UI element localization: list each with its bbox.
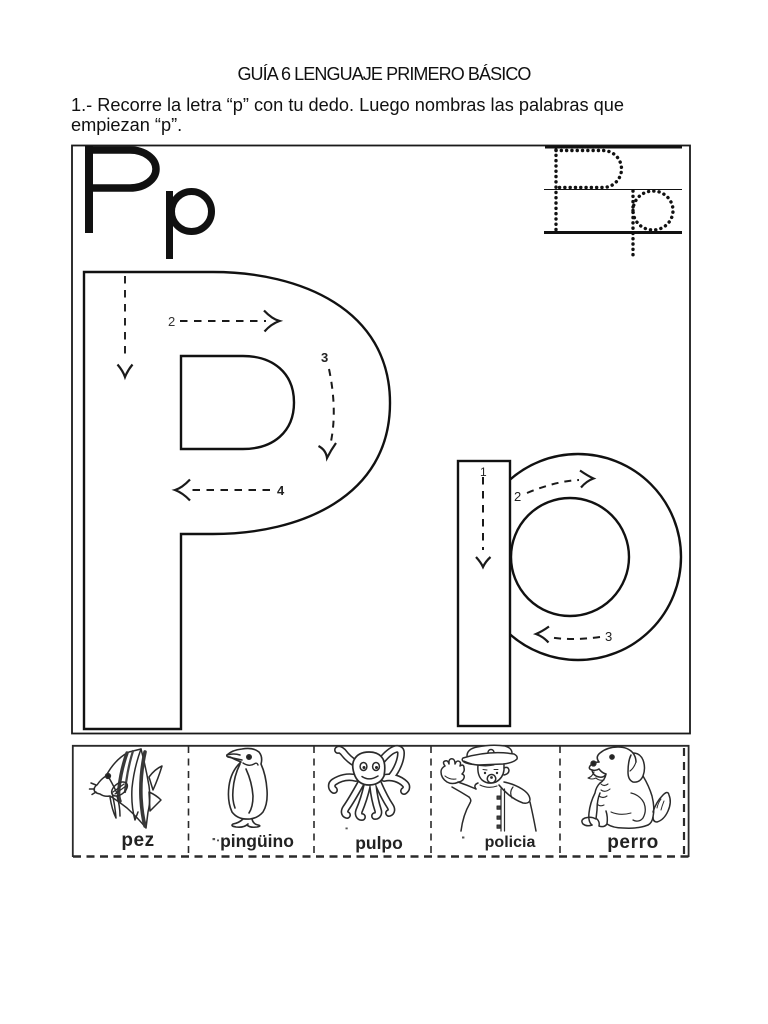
svg-text:3: 3	[605, 629, 612, 644]
svg-text:pingüino: pingüino	[220, 831, 294, 851]
svg-text:2: 2	[514, 489, 521, 504]
svg-text:3: 3	[321, 350, 328, 365]
svg-text:perro: perro	[607, 832, 659, 853]
svg-text:pulpo: pulpo	[355, 833, 403, 853]
svg-text:policia: policia	[485, 834, 536, 851]
svg-text:1: 1	[480, 465, 487, 479]
svg-text:pez: pez	[121, 830, 154, 851]
svg-text:4: 4	[277, 483, 285, 498]
svg-text:2: 2	[168, 314, 175, 329]
